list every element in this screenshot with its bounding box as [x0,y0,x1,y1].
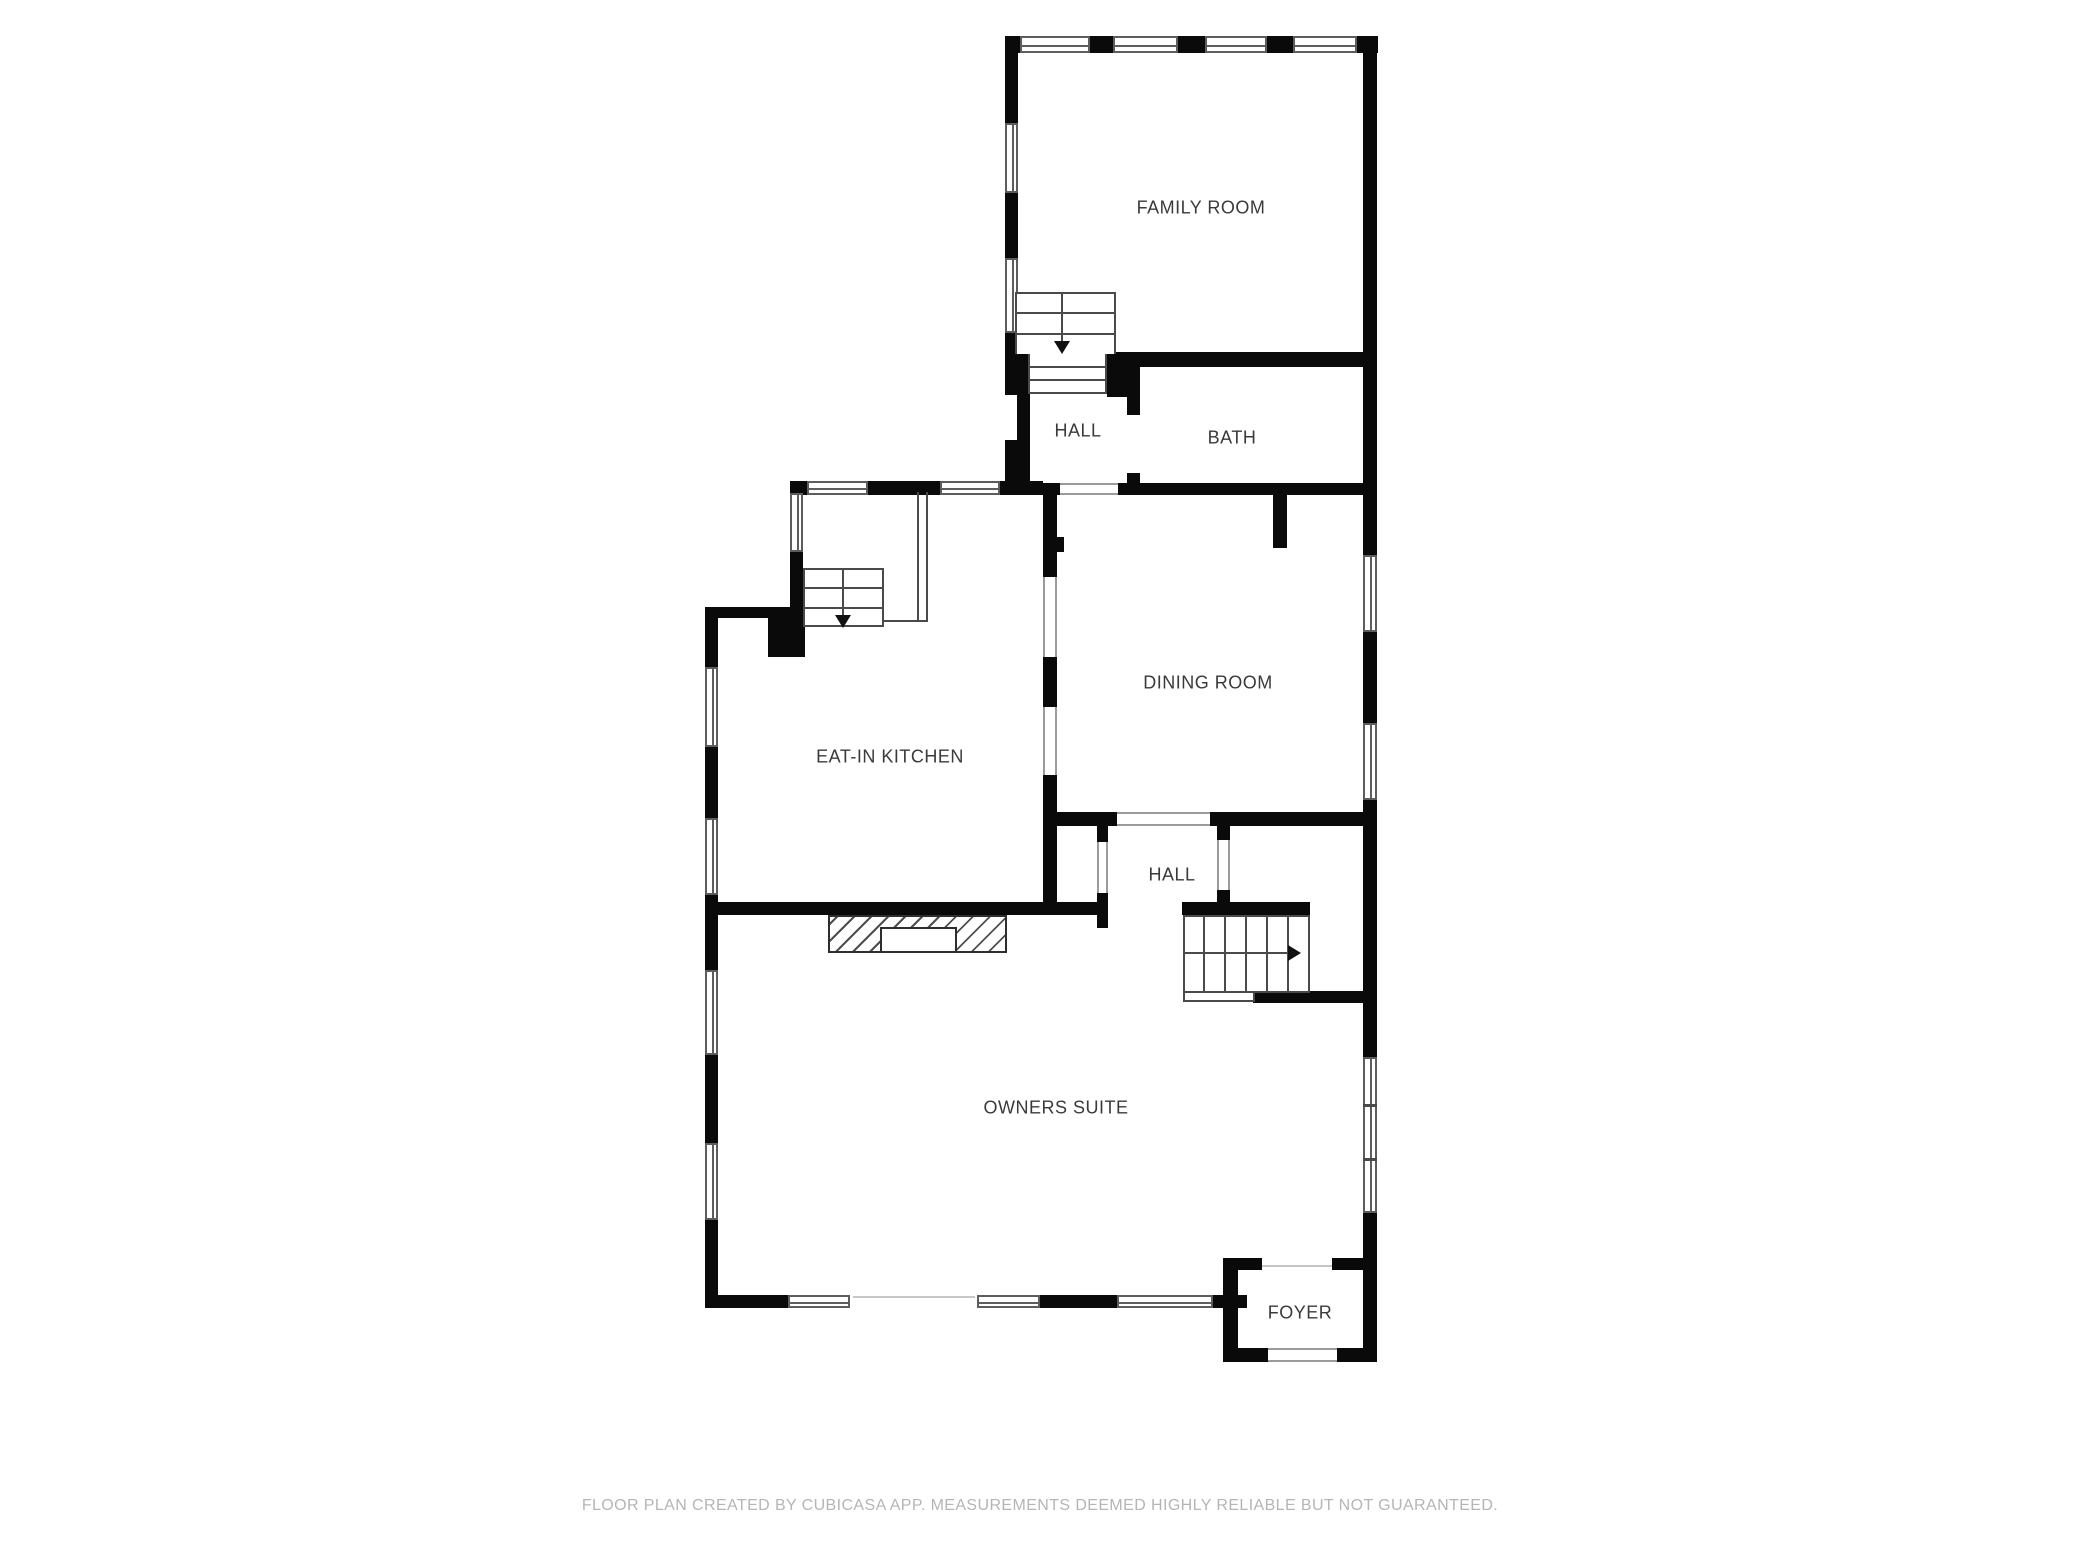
wall [1043,657,1057,707]
stairs-upper-treads [1028,354,1107,394]
wall [1017,395,1030,440]
stair-railing [917,492,919,622]
wall [705,902,1108,915]
wall [1043,490,1057,577]
window [705,667,718,747]
wall [1273,495,1287,548]
window-divider [1363,1104,1377,1107]
window [940,481,1000,495]
window [1363,555,1377,632]
stair-arrow-shaft [842,590,844,618]
window [1363,1057,1377,1213]
wall [1005,193,1018,258]
stair-railing [884,620,928,622]
window [1117,1295,1213,1308]
stairs-lower-treads [1183,993,1255,1002]
wall [1223,1348,1268,1362]
stair-step [1224,915,1226,993]
arrow-right-icon [1288,945,1301,961]
room-label-hall-upper: HALL [1054,421,1101,442]
wall [1223,1258,1238,1362]
room-label-family-room: FAMILY ROOM [1137,198,1266,219]
room-label-foyer: FOYER [1268,1303,1333,1324]
wall [1005,352,1030,395]
wall [1127,352,1140,415]
window-divider [1363,1158,1377,1161]
entry-door [1268,1348,1337,1362]
room-label-dining-room: DINING ROOM [1143,673,1273,694]
window [807,481,868,495]
room-label-owners-suite: OWNERS SUITE [983,1098,1128,1119]
door-opening [1117,812,1210,826]
door-opening [853,1296,975,1298]
stair-arrow-shaft [1061,296,1063,342]
window [1020,36,1090,53]
stair-step [1245,915,1247,993]
window [1363,723,1377,800]
floor-plan: FAMILY ROOM HALL BATH DINING ROOM EAT-IN… [0,0,2080,1560]
stair-step [1028,379,1107,381]
room-label-hall-lower: HALL [1148,865,1195,886]
wall [1223,1258,1262,1270]
door-opening [1262,1265,1332,1267]
door-opening [1217,840,1230,890]
wall [1217,812,1230,840]
window [977,1295,1040,1308]
window [705,818,718,895]
wall [1107,352,1363,367]
window [788,1295,850,1308]
stair-railing [926,492,928,622]
arrow-down-icon [1054,341,1070,354]
door-opening [1097,842,1108,893]
wall [1337,1348,1377,1362]
stair-step [1015,312,1116,314]
room-label-eat-in-kitchen: EAT-IN KITCHEN [816,747,964,768]
wall [1332,1258,1363,1270]
wall [1210,812,1363,826]
wall [1040,1295,1117,1308]
stair-step [1028,366,1107,368]
wall [1182,902,1310,915]
window [705,1143,718,1220]
door-opening [1043,707,1057,775]
room-label-bath: BATH [1208,428,1257,449]
wall [1057,537,1064,552]
stair-step [1015,333,1116,335]
door-opening [1043,577,1057,657]
door-opening [1060,483,1118,495]
window [705,970,718,1055]
stair-arrow-shaft [1183,952,1290,954]
stair-step [1266,915,1268,993]
wall [705,1295,788,1308]
stair-step [1203,915,1205,993]
arrow-down-icon [835,615,851,628]
wall [1005,36,1018,123]
window [1113,36,1178,53]
disclaimer-text: FLOOR PLAN CREATED BY CUBICASA APP. MEAS… [582,1497,1498,1515]
wall [1118,483,1363,495]
wall [1097,812,1108,842]
window [1005,123,1018,193]
fireplace-firebox [880,927,957,953]
wall [1043,775,1057,915]
window [1205,36,1267,53]
window [790,493,803,552]
wall [768,615,805,657]
window [1293,36,1357,53]
